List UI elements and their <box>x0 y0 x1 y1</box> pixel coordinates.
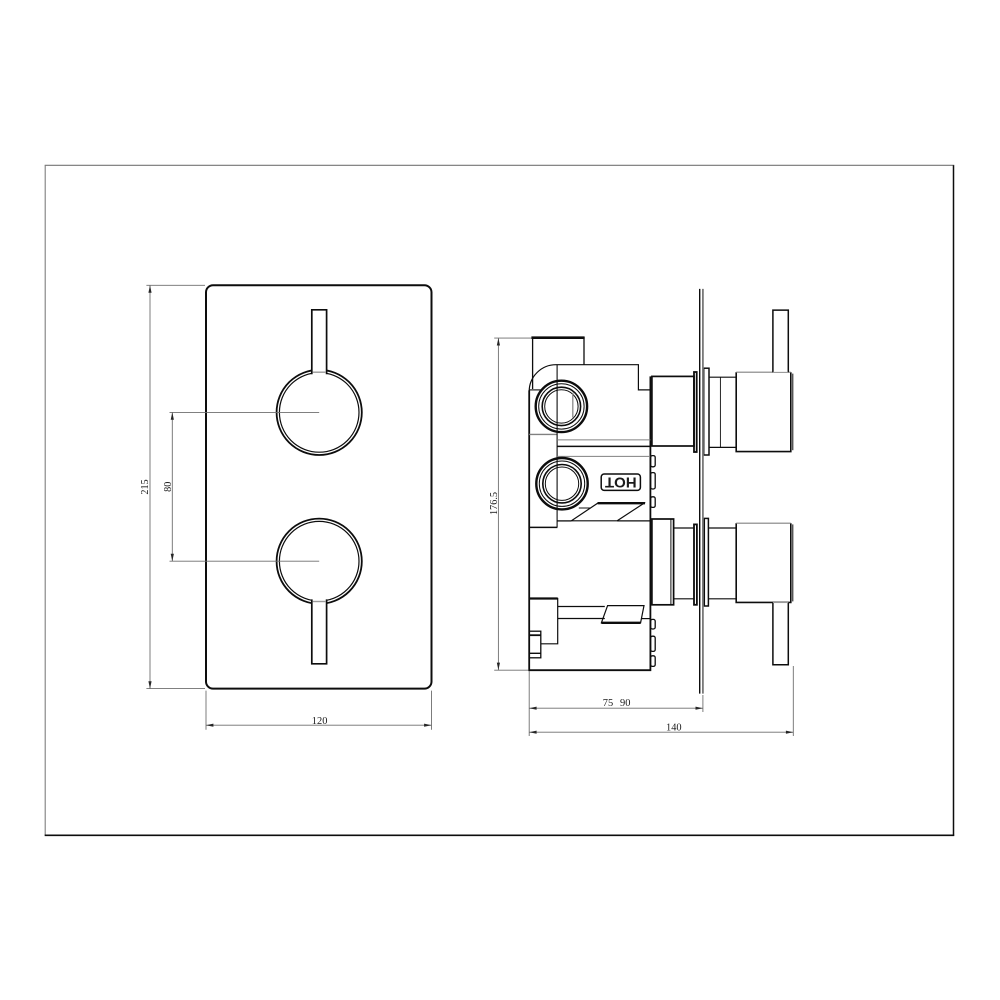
svg-text:215: 215 <box>140 479 151 494</box>
svg-text:90: 90 <box>620 698 630 709</box>
svg-text:120: 120 <box>312 716 328 727</box>
svg-text:176.5: 176.5 <box>489 492 500 515</box>
svg-text:140: 140 <box>666 722 682 733</box>
svg-text:HOT: HOT <box>605 474 637 491</box>
svg-text:75: 75 <box>603 698 613 709</box>
svg-text:80: 80 <box>163 482 174 492</box>
